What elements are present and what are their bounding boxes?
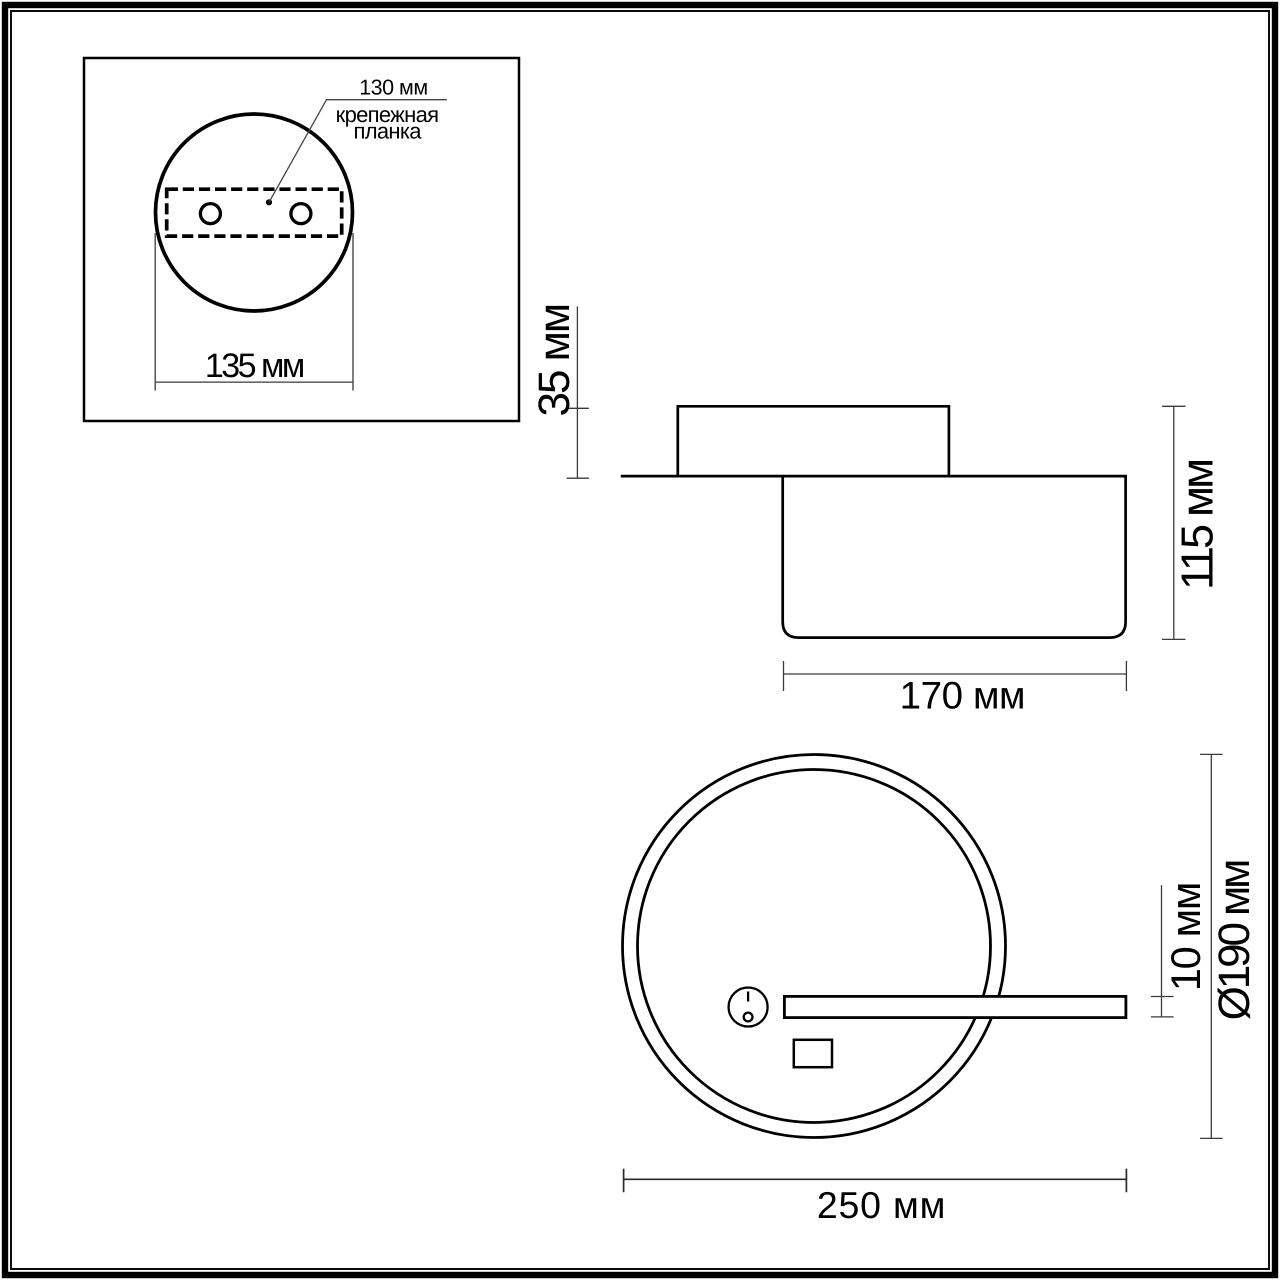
svg-text:130 мм: 130 мм xyxy=(359,75,427,99)
svg-text:10 мм: 10 мм xyxy=(1162,883,1209,991)
svg-text:35 мм: 35 мм xyxy=(530,305,579,417)
svg-text:Ø190 мм: Ø190 мм xyxy=(1210,861,1259,1021)
svg-text:планка: планка xyxy=(354,119,423,144)
svg-text:250 мм: 250 мм xyxy=(817,1184,946,1226)
svg-text:115 мм: 115 мм xyxy=(1172,461,1223,590)
svg-text:135 мм: 135 мм xyxy=(205,347,304,385)
svg-text:170 мм: 170 мм xyxy=(900,675,1025,718)
